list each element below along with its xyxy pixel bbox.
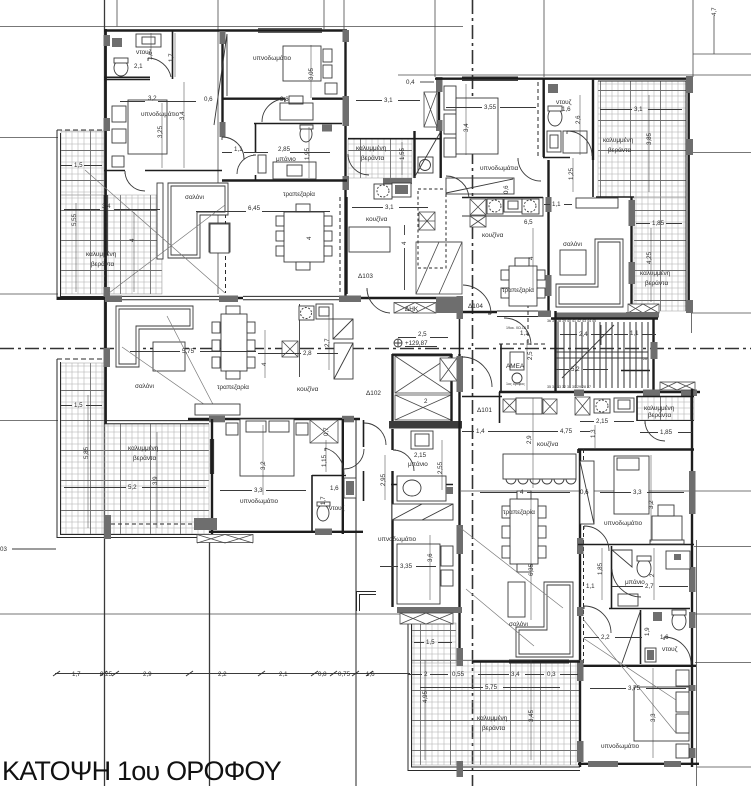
svg-text:υπνοδωμάτια: υπνοδωμάτια bbox=[480, 164, 519, 172]
svg-text:2,2: 2,2 bbox=[601, 634, 610, 641]
svg-text:τραπεζαρία: τραπεζαρία bbox=[503, 508, 535, 516]
svg-text:σαλόνι: σαλόνι bbox=[509, 620, 528, 628]
svg-text:2,7: 2,7 bbox=[324, 338, 331, 347]
svg-text:1,85: 1,85 bbox=[652, 220, 665, 227]
svg-text:5,2: 5,2 bbox=[128, 484, 137, 491]
svg-text:3,4: 3,4 bbox=[511, 671, 520, 678]
svg-text:0,7: 0,7 bbox=[323, 427, 330, 436]
svg-text:1,6: 1,6 bbox=[147, 51, 154, 60]
svg-text:2: 2 bbox=[424, 398, 428, 405]
svg-text:2,9: 2,9 bbox=[143, 671, 152, 678]
svg-text:υπνοδωμάτιο: υπνοδωμάτιο bbox=[253, 54, 292, 62]
svg-text:1,7: 1,7 bbox=[72, 671, 81, 678]
svg-text:03: 03 bbox=[0, 546, 7, 553]
svg-text:1,25: 1,25 bbox=[568, 167, 575, 180]
svg-text:2,4: 2,4 bbox=[579, 331, 588, 338]
svg-text:0,55: 0,55 bbox=[452, 671, 465, 678]
svg-text:4,7: 4,7 bbox=[711, 7, 718, 16]
svg-text:βεράντα: βεράντα bbox=[648, 411, 671, 419]
svg-text:3,75: 3,75 bbox=[628, 685, 641, 692]
svg-text:ντουζ: ντουζ bbox=[329, 505, 345, 512]
svg-text:τραπεζαρία: τραπεζαρία bbox=[217, 383, 249, 391]
svg-text:4: 4 bbox=[129, 238, 136, 242]
svg-text:1,55: 1,55 bbox=[399, 147, 406, 160]
svg-text:Δ104: Δ104 bbox=[468, 303, 483, 310]
svg-text:3,45: 3,45 bbox=[528, 709, 535, 722]
svg-text:τραπεζαρία: τραπεζαρία bbox=[283, 190, 315, 198]
svg-text:καλυμμένη: καλυμμένη bbox=[644, 404, 675, 412]
svg-text:3,9: 3,9 bbox=[152, 476, 159, 485]
svg-text:1,5: 1,5 bbox=[426, 639, 435, 646]
svg-text:Δ101: Δ101 bbox=[477, 407, 492, 414]
svg-text:3,6: 3,6 bbox=[280, 96, 289, 103]
svg-text:τραπεζαρία: τραπεζαρία bbox=[502, 286, 534, 294]
svg-text:+129,87: +129,87 bbox=[405, 340, 428, 347]
svg-text:σαλόνι: σαλόνι bbox=[563, 240, 582, 248]
svg-text:3,85: 3,85 bbox=[646, 132, 653, 145]
svg-text:3,1: 3,1 bbox=[384, 97, 393, 104]
svg-text:2,9: 2,9 bbox=[526, 435, 533, 444]
svg-text:3,3: 3,3 bbox=[650, 713, 657, 722]
svg-text:3,2: 3,2 bbox=[148, 95, 157, 102]
svg-text:3,4: 3,4 bbox=[102, 203, 111, 210]
svg-text:1,7: 1,7 bbox=[168, 53, 175, 62]
svg-text:καλυμμένη: καλυμμένη bbox=[356, 144, 387, 152]
svg-text:ντουζ: ντουζ bbox=[556, 99, 572, 106]
svg-text:2,2: 2,2 bbox=[218, 671, 227, 678]
svg-text:0,4: 0,4 bbox=[406, 79, 415, 86]
svg-text:1,1: 1,1 bbox=[586, 583, 595, 590]
svg-text:2,15: 2,15 bbox=[414, 452, 427, 459]
svg-text:0,8: 0,8 bbox=[318, 671, 327, 678]
svg-text:1,1: 1,1 bbox=[234, 146, 243, 153]
svg-text:6,5: 6,5 bbox=[524, 219, 533, 226]
svg-text:1,5: 1,5 bbox=[74, 402, 83, 409]
svg-text:0,6: 0,6 bbox=[503, 185, 510, 194]
svg-text:4,95: 4,95 bbox=[422, 690, 429, 703]
svg-text:3,2: 3,2 bbox=[260, 461, 267, 470]
svg-text:3,05: 3,05 bbox=[308, 67, 315, 80]
svg-text:1,6: 1,6 bbox=[330, 485, 339, 492]
svg-text:5,85: 5,85 bbox=[83, 446, 90, 459]
svg-text:βεράντα: βεράντα bbox=[608, 146, 631, 154]
svg-text:35 34 33 32 31 30 29 28 27: 35 34 33 32 31 30 29 28 27 bbox=[547, 385, 591, 389]
svg-text:5,55: 5,55 bbox=[71, 213, 78, 226]
svg-text:κουζίνα: κουζίνα bbox=[297, 385, 319, 393]
svg-text:3,35: 3,35 bbox=[400, 563, 413, 570]
svg-text:βεράντα: βεράντα bbox=[645, 279, 668, 287]
svg-text:0,25: 0,25 bbox=[100, 671, 113, 678]
svg-text:1,15: 1,15 bbox=[321, 454, 328, 467]
svg-text:4,25: 4,25 bbox=[646, 251, 653, 264]
svg-text:1ος όροφος: 1ος όροφος bbox=[506, 382, 525, 386]
svg-text:μπάνιο: μπάνιο bbox=[625, 578, 645, 586]
svg-text:2: 2 bbox=[649, 573, 656, 577]
svg-text:κουζίνα: κουζίνα bbox=[482, 231, 504, 239]
svg-text:1,7: 1,7 bbox=[320, 496, 327, 505]
svg-text:1,85: 1,85 bbox=[597, 562, 604, 575]
svg-text:2,7: 2,7 bbox=[645, 583, 654, 590]
svg-text:5,2: 5,2 bbox=[571, 366, 580, 373]
svg-text:σαλόνι: σαλόνι bbox=[185, 193, 204, 201]
svg-text:1,5: 1,5 bbox=[74, 162, 83, 169]
svg-text:3,3: 3,3 bbox=[633, 489, 642, 496]
svg-text:μπάνιο: μπάνιο bbox=[408, 460, 428, 468]
svg-text:3,4: 3,4 bbox=[179, 111, 186, 120]
svg-text:2,5: 2,5 bbox=[418, 331, 427, 338]
svg-text:3,55: 3,55 bbox=[484, 104, 497, 111]
svg-text:κουζίνα: κουζίνα bbox=[537, 440, 559, 448]
svg-text:1,1: 1,1 bbox=[630, 330, 639, 337]
svg-text:0,75: 0,75 bbox=[338, 671, 351, 678]
svg-text:βεράντα: βεράντα bbox=[482, 724, 505, 732]
svg-text:1,6: 1,6 bbox=[562, 106, 571, 113]
svg-text:Δ102: Δ102 bbox=[366, 390, 381, 397]
svg-text:3,2: 3,2 bbox=[648, 500, 655, 509]
svg-text:μπάνιο: μπάνιο bbox=[276, 155, 296, 163]
svg-text:1,9: 1,9 bbox=[644, 627, 651, 636]
svg-text:ντουζ: ντουζ bbox=[662, 646, 678, 653]
svg-text:2,1: 2,1 bbox=[279, 671, 288, 678]
svg-text:3,1: 3,1 bbox=[385, 204, 394, 211]
svg-text:κουζίνα: κουζίνα bbox=[366, 215, 388, 223]
svg-text:σαλόνι: σαλόνι bbox=[135, 382, 154, 390]
svg-text:ΔΗΚ: ΔΗΚ bbox=[405, 306, 419, 313]
svg-text:2,85: 2,85 bbox=[278, 146, 291, 153]
svg-text:4: 4 bbox=[401, 241, 408, 245]
svg-text:καλυμμένη: καλυμμένη bbox=[640, 269, 671, 277]
svg-text:υπνοδωμάτιο: υπνοδωμάτιο bbox=[141, 110, 180, 118]
svg-text:4,75: 4,75 bbox=[560, 428, 573, 435]
svg-text:1,4: 1,4 bbox=[476, 428, 485, 435]
svg-text:1,6: 1,6 bbox=[660, 634, 669, 641]
svg-text:2: 2 bbox=[424, 671, 428, 678]
svg-text:36 37 38 39 40 41 42 43 44 45: 36 37 38 39 40 41 42 43 44 45 bbox=[547, 319, 596, 323]
svg-text:2,95: 2,95 bbox=[380, 473, 387, 486]
svg-text:υπνοδωμάτιο: υπνοδωμάτιο bbox=[604, 519, 643, 527]
svg-text:4: 4 bbox=[261, 362, 268, 366]
svg-text:1,85: 1,85 bbox=[660, 429, 673, 436]
svg-text:0,6: 0,6 bbox=[580, 489, 589, 496]
svg-text:1,1: 1,1 bbox=[520, 330, 529, 337]
svg-text:4: 4 bbox=[528, 256, 535, 260]
svg-text:καλυμμένη: καλυμμένη bbox=[128, 444, 159, 452]
svg-text:2,6: 2,6 bbox=[575, 115, 582, 124]
svg-text:3,3: 3,3 bbox=[254, 487, 263, 494]
svg-text:0,3: 0,3 bbox=[547, 671, 556, 678]
svg-text:3,25: 3,25 bbox=[157, 125, 164, 138]
svg-text:ΚΑΤΟΨΗ 1ου ΟΡΟΦΟΥ: ΚΑΤΟΨΗ 1ου ΟΡΟΦΟΥ bbox=[2, 756, 282, 786]
svg-text:βεράντα: βεράντα bbox=[361, 154, 384, 162]
svg-text:2,15: 2,15 bbox=[596, 418, 609, 425]
svg-text:υπνοδωμάτιο: υπνοδωμάτιο bbox=[601, 742, 640, 750]
svg-text:1,95: 1,95 bbox=[304, 147, 311, 160]
svg-text:υπνοδωμάτιο: υπνοδωμάτιο bbox=[378, 535, 417, 543]
svg-text:5,75: 5,75 bbox=[485, 684, 498, 691]
svg-text:4: 4 bbox=[520, 489, 524, 496]
svg-text:βεράντα: βεράντα bbox=[91, 260, 114, 268]
svg-text:2,8: 2,8 bbox=[303, 350, 312, 357]
svg-text:1,1: 1,1 bbox=[552, 201, 561, 208]
svg-text:2,1: 2,1 bbox=[134, 63, 143, 70]
svg-text:καλυμμένη: καλυμμένη bbox=[86, 250, 117, 258]
svg-text:26: 26 bbox=[643, 357, 647, 361]
svg-text:4: 4 bbox=[306, 236, 313, 240]
svg-text:6,45: 6,45 bbox=[248, 205, 261, 212]
svg-text:καλυμμένη: καλυμμένη bbox=[477, 714, 508, 722]
svg-text:1,6: 1,6 bbox=[366, 671, 375, 678]
svg-text:0,6: 0,6 bbox=[204, 96, 213, 103]
svg-text:3,1: 3,1 bbox=[634, 106, 643, 113]
svg-text:2,5: 2,5 bbox=[527, 351, 534, 360]
svg-text:2,55: 2,55 bbox=[437, 461, 444, 474]
svg-text:ΑΜΕΑ: ΑΜΕΑ bbox=[506, 363, 525, 370]
svg-text:1,3: 1,3 bbox=[590, 429, 597, 438]
svg-text:6,35: 6,35 bbox=[528, 563, 535, 576]
svg-text:Δ103: Δ103 bbox=[358, 273, 373, 280]
svg-text:υπνοδωμάτιο: υπνοδωμάτιο bbox=[240, 497, 279, 505]
svg-text:5,75: 5,75 bbox=[182, 348, 195, 355]
svg-text:3,4: 3,4 bbox=[463, 123, 470, 132]
svg-text:βεράντα: βεράντα bbox=[133, 454, 156, 462]
svg-text:3,6: 3,6 bbox=[427, 553, 434, 562]
svg-text:καλυμμένη: καλυμμένη bbox=[603, 136, 634, 144]
